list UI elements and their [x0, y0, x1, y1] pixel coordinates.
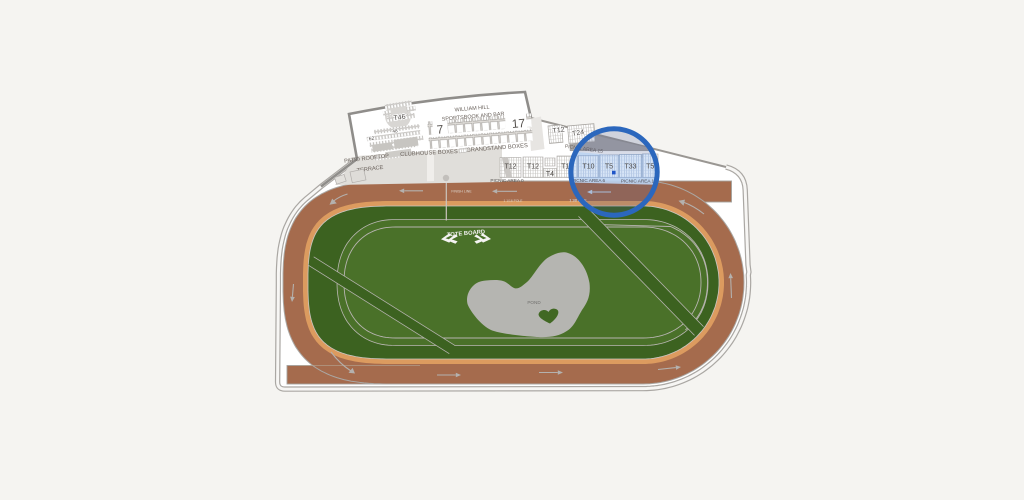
svg-text:T10: T10 — [582, 163, 594, 170]
svg-text:POND: POND — [527, 300, 541, 305]
svg-text:T33: T33 — [624, 163, 636, 170]
svg-text:FINISH LINE: FINISH LINE — [451, 190, 472, 194]
svg-text:T4: T4 — [546, 171, 554, 178]
svg-text:PICNIC AREA 1: PICNIC AREA 1 — [621, 178, 655, 183]
svg-text:T12: T12 — [504, 163, 516, 170]
svg-text:PICNIC AREA 0: PICNIC AREA 0 — [490, 178, 524, 183]
svg-text:17: 17 — [511, 116, 526, 131]
svg-text:T12: T12 — [527, 163, 539, 170]
svg-text:62: 62 — [368, 136, 375, 143]
svg-text:1 1/16 POLE: 1 1/16 POLE — [504, 199, 524, 203]
svg-text:T5: T5 — [605, 163, 613, 170]
svg-text:PICNIC AREA 6: PICNIC AREA 6 — [572, 178, 606, 183]
svg-text:T5: T5 — [646, 163, 654, 170]
